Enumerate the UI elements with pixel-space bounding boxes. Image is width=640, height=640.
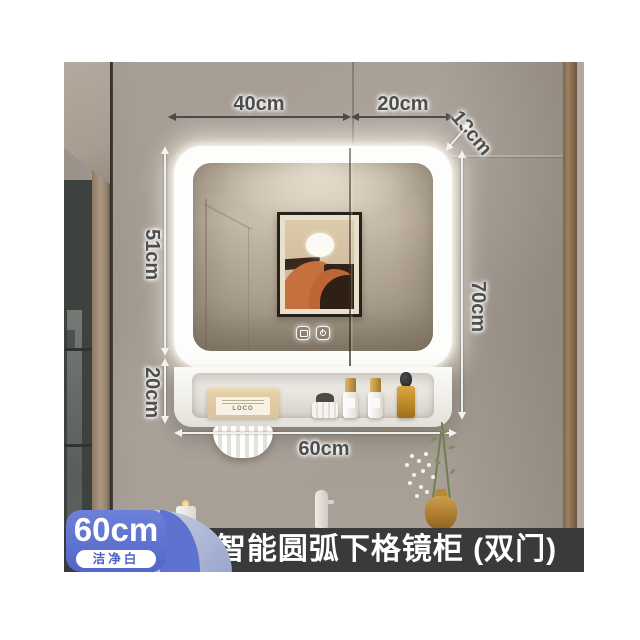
power-icon[interactable] xyxy=(316,326,330,340)
product-title: 智能圆弧下格镜柜 (双门) xyxy=(194,528,579,572)
dim-line-60cm xyxy=(178,432,455,434)
defog-icon-glyph xyxy=(300,330,308,337)
babys-breath-flowers xyxy=(410,454,414,458)
right-wall-edge xyxy=(577,62,584,572)
brush-jar xyxy=(312,402,338,418)
dim-label-40cm: 40cm xyxy=(214,93,304,116)
perfume-bottle xyxy=(397,386,415,418)
dim-line-20cm-left xyxy=(164,360,166,422)
arrowhead xyxy=(161,348,169,356)
left-cabinet-seam xyxy=(110,62,113,572)
mirror-doors xyxy=(193,163,433,351)
spray-bottle-label xyxy=(346,398,355,408)
door-seam xyxy=(349,148,351,366)
left-cabinet-shelf xyxy=(64,348,93,351)
tile-joint-horizontal xyxy=(452,155,563,157)
dim-line-51cm xyxy=(164,148,166,354)
power-icon-line xyxy=(322,329,323,333)
spray-bottle-label xyxy=(371,398,380,408)
dim-line-40cm xyxy=(172,116,349,118)
arrowhead xyxy=(458,412,466,420)
left-cabinet-shelf xyxy=(64,444,93,447)
left-cabinet-bottle xyxy=(66,330,75,348)
artwork-canvas xyxy=(285,220,354,309)
arrowhead xyxy=(168,113,176,121)
tissue-box-label-line xyxy=(222,400,264,401)
arrowhead xyxy=(458,150,466,158)
size-badge: 60cm 洁净白 xyxy=(66,510,166,572)
arrowhead xyxy=(174,429,182,437)
tissue-box-label-line xyxy=(222,403,264,404)
tile-joint-vertical xyxy=(352,62,354,150)
badge-size-number: 60cm xyxy=(74,511,158,548)
artwork-sun xyxy=(306,233,334,257)
faucet-handle xyxy=(327,500,334,504)
arrowhead xyxy=(161,416,169,424)
dim-line-20cm-top xyxy=(355,116,452,118)
defog-icon[interactable] xyxy=(296,326,310,340)
arrowhead xyxy=(449,429,457,437)
tissue-box-label: LOCO xyxy=(216,397,270,415)
spray-bottle-cap xyxy=(345,378,356,393)
dim-line-70cm xyxy=(461,152,463,418)
dim-label-20cm-left: 20cm xyxy=(140,364,163,422)
flower-vase xyxy=(425,496,457,530)
arrowhead xyxy=(351,113,359,121)
arrowhead xyxy=(343,113,351,121)
dim-label-51cm: 51cm xyxy=(140,210,163,300)
dim-label-60cm: 60cm xyxy=(279,438,369,461)
dim-label-20cm-top: 20cm xyxy=(358,93,448,116)
arrowhead xyxy=(161,358,169,366)
right-wood-trim xyxy=(563,62,577,572)
tissue-box: LOCO xyxy=(207,388,279,418)
faucet xyxy=(315,490,328,528)
badge-finish-pill: 洁净白 xyxy=(76,550,156,568)
tissue-box-brand: LOCO xyxy=(220,406,266,413)
spray-bottle-cap xyxy=(370,378,381,393)
perfume-cap xyxy=(400,372,412,387)
product-photo: LOCO 40cm 20cm 13cm 51cm 20cm 70cm 60cm xyxy=(64,62,584,572)
dim-label-70cm: 70cm xyxy=(466,262,489,352)
arrowhead xyxy=(161,146,169,154)
badge-size-text: 60cm xyxy=(66,511,166,549)
